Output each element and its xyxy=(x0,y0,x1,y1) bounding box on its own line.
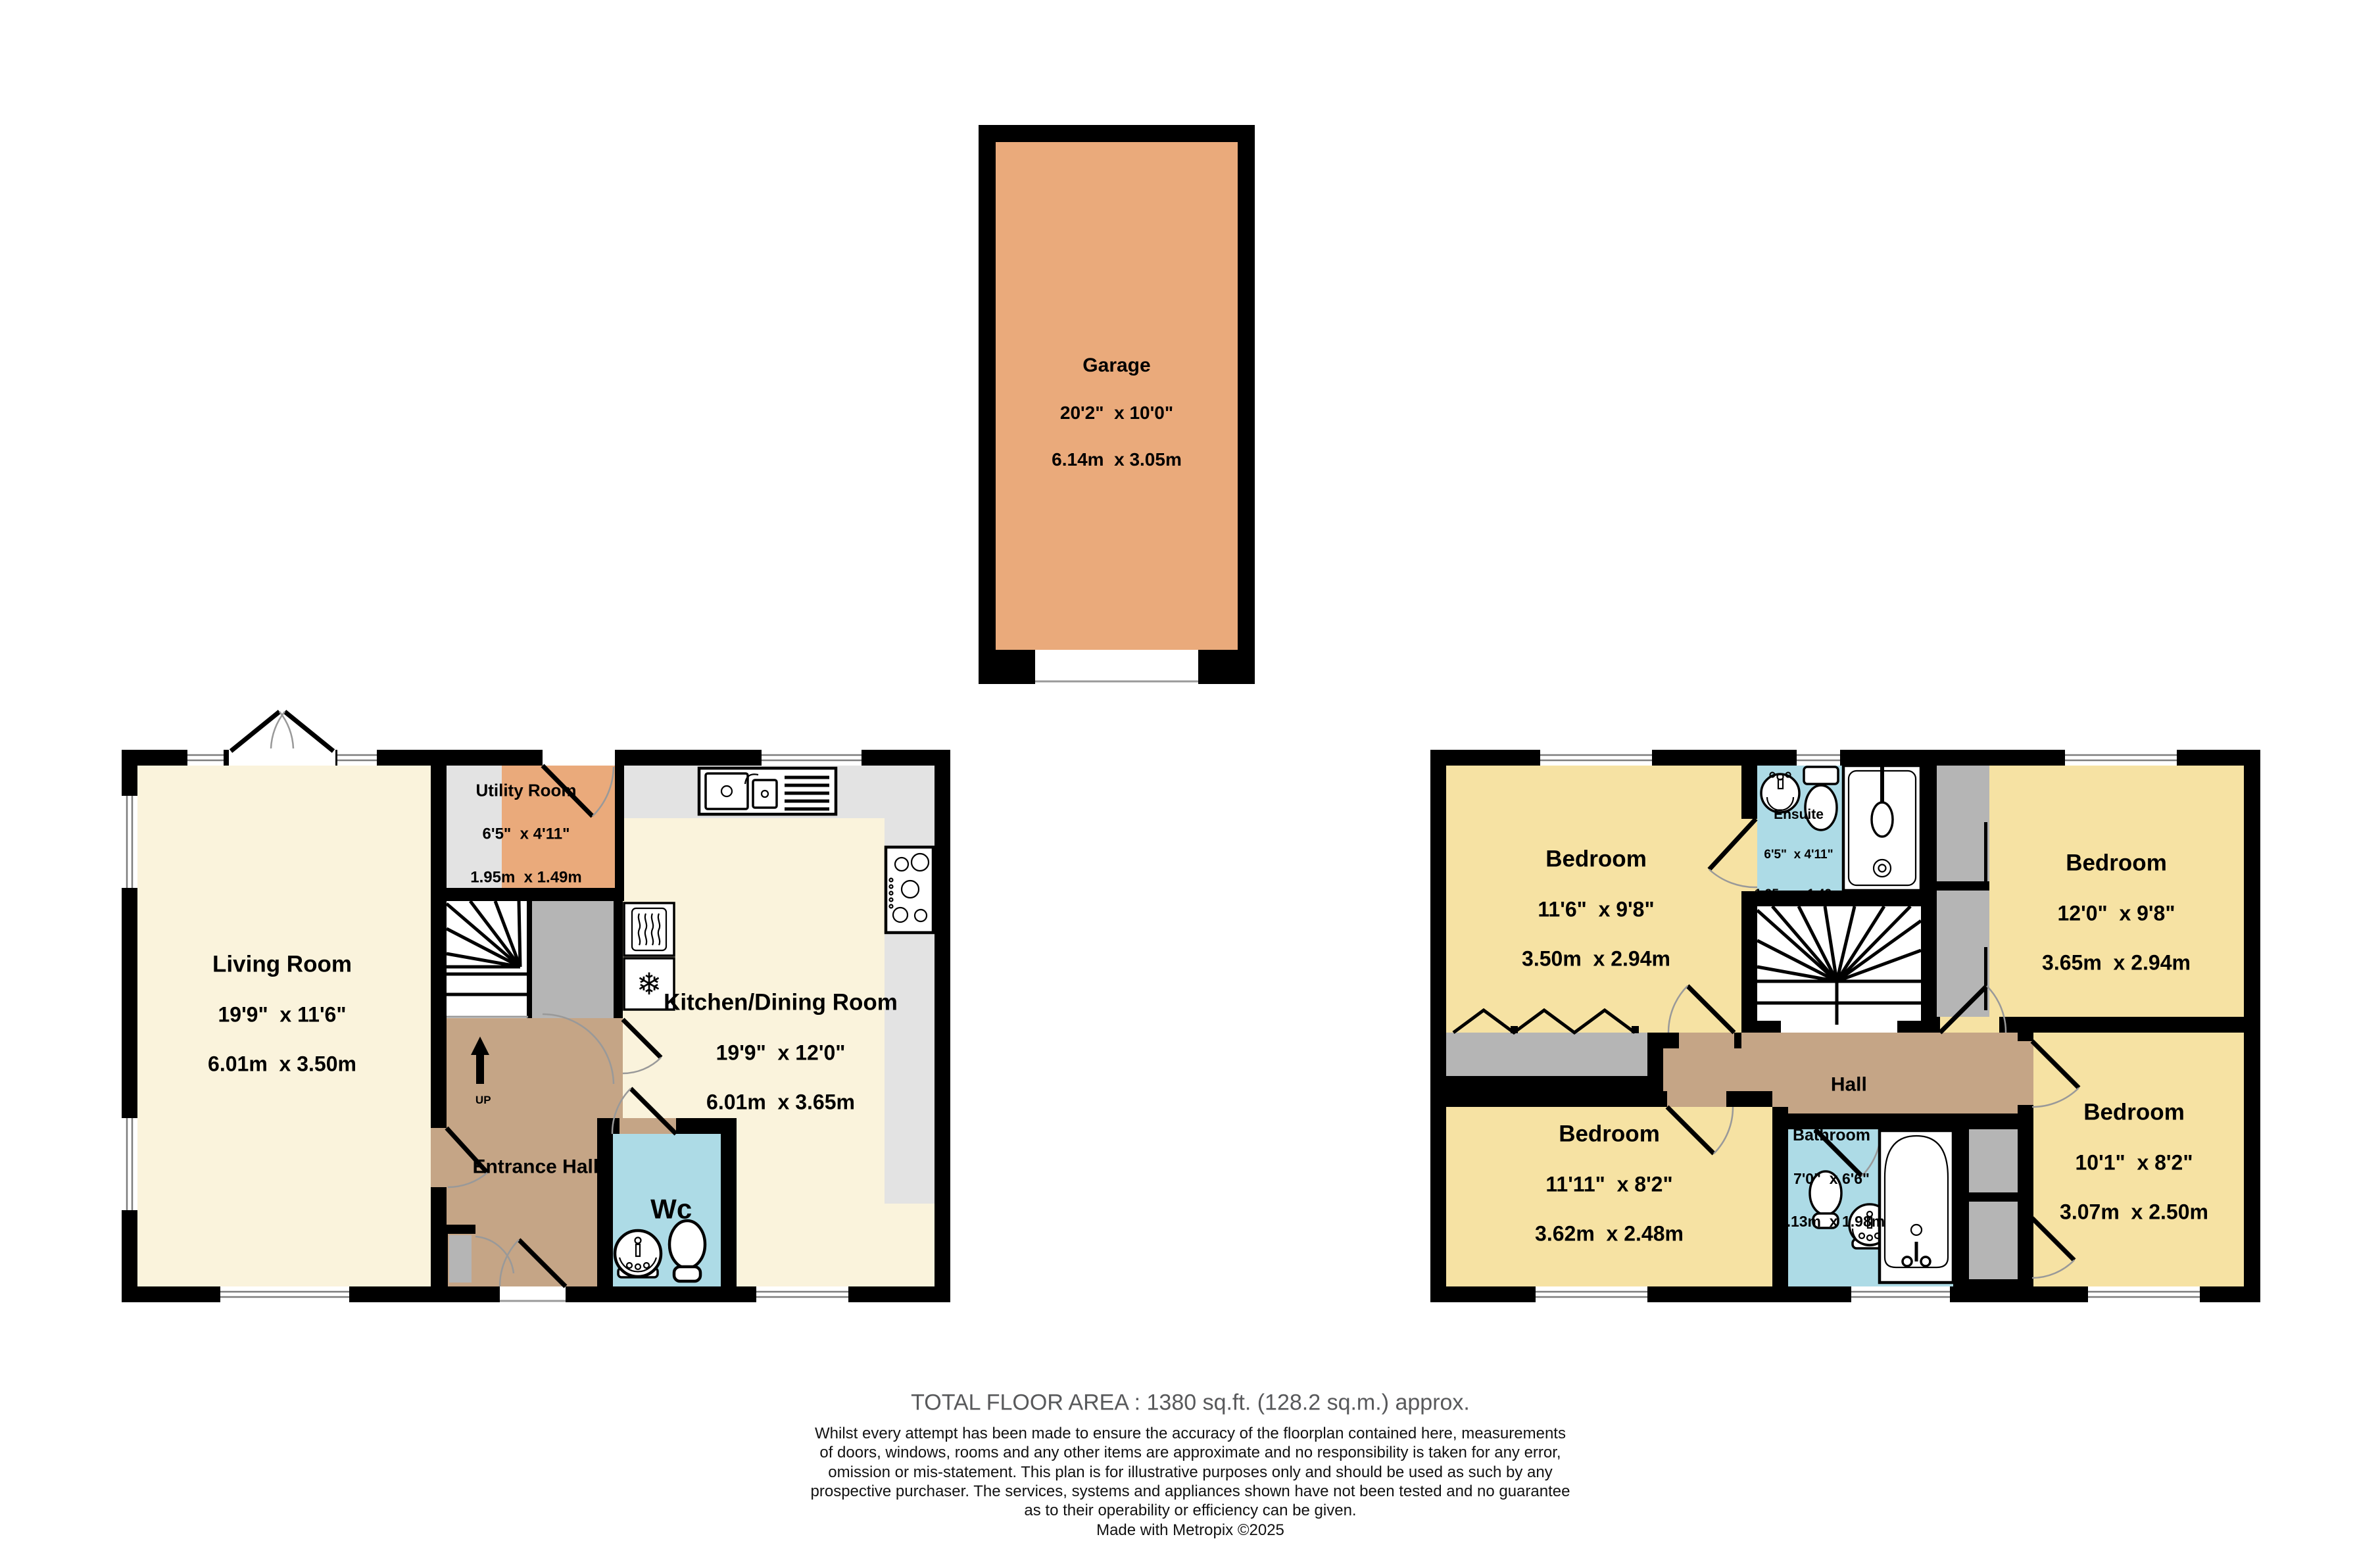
wc-basin-icon xyxy=(615,1231,661,1277)
shower-icon xyxy=(1843,766,1921,891)
landing-cupboard xyxy=(1937,766,1989,1017)
bath-icon xyxy=(1880,1131,1953,1283)
boiler-icon xyxy=(624,903,674,956)
entrance-hall-label: Entrance Hall xyxy=(462,1133,598,1179)
disclaimer-text: Whilst every attempt has been made to en… xyxy=(691,1424,1690,1520)
svg-text:❄: ❄ xyxy=(637,967,662,1001)
bedroom4-door-gap xyxy=(2018,1041,2033,1105)
airing-cupboard-1 xyxy=(1969,1129,2018,1192)
airing-cupboard-2 xyxy=(1969,1202,2018,1279)
wc-label: Wc xyxy=(635,1160,692,1225)
hall-closet xyxy=(449,1235,472,1283)
hall-label: Hall xyxy=(1820,1050,1867,1097)
kitchen-dining-label: Kitchen/Dining Room 19'9" x 12'0" 6.01m … xyxy=(664,964,898,1128)
garage-door-opening xyxy=(1035,650,1198,684)
bedroom4-label: Bedroom 10'1" x 8'2" 3.07m x 2.50m xyxy=(2060,1074,2208,1238)
understairs-cupboard xyxy=(532,901,614,1018)
credit-text: Made with Metropix ©2025 xyxy=(691,1521,1690,1540)
bedroom1-label: Bedroom 11'6" x 9'8" 3.50m x 2.94m xyxy=(1522,821,1670,985)
up-label: UP xyxy=(469,1081,491,1107)
living-door-gap xyxy=(431,1128,447,1187)
french-doors xyxy=(231,712,333,751)
bedroom1-wardrobe xyxy=(1446,1033,1647,1076)
kitchen-sink-icon xyxy=(699,768,836,814)
bedroom2-label: Bedroom 12'0" x 9'8" 3.65m x 2.94m xyxy=(2042,825,2191,989)
living-room-label: Living Room 19'9" x 11'6" 6.01m x 3.50m xyxy=(208,926,356,1090)
bedroom3-label: Bedroom 11'11" x 8'2" 3.62m x 2.48m xyxy=(1535,1096,1684,1260)
garage-label: Garage 20'2" x 10'0" 6.14m x 3.05m xyxy=(1052,329,1182,483)
total-floor-area: TOTAL FLOOR AREA : 1380 sq.ft. (128.2 sq… xyxy=(911,1390,1470,1416)
ensuite-label: Ensuite 6'5" x 4'11" 1.95m x 1.49m xyxy=(1755,782,1843,915)
utility-room-label: Utility Room 6'5" x 4'11" 1.95m x 1.49m xyxy=(470,755,581,899)
hob-icon xyxy=(886,847,933,933)
wc-toilet-icon xyxy=(669,1221,705,1281)
bathroom-label: Bathroom 7'0" x 6'6" 2.13m x 1.98m xyxy=(1778,1101,1885,1243)
